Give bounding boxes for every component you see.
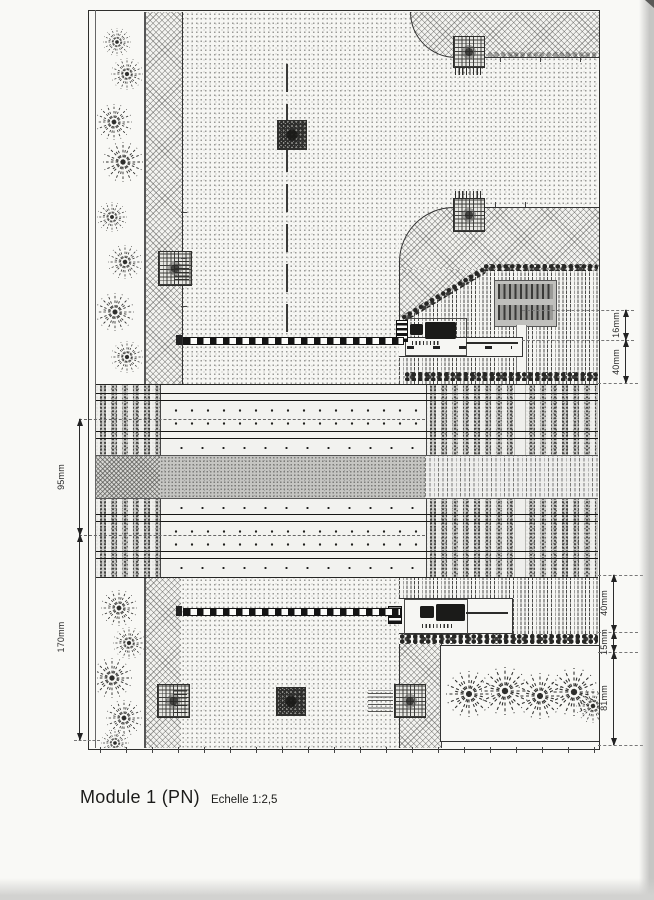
bottom-border-ticks <box>100 747 598 753</box>
dimension-label: 170mm <box>56 621 66 652</box>
module-inner-left-line <box>95 10 96 748</box>
dimension-label: 81mm <box>599 685 609 711</box>
dimension-label: 15mm <box>599 629 609 655</box>
drawing-title-block: Module 1 (PN) Echelle 1:2,5 <box>80 787 277 808</box>
dimension-label: 95mm <box>56 464 66 490</box>
extension-line <box>598 575 643 576</box>
dimension-40mm-upper <box>625 340 626 383</box>
dimension-40mm-lower <box>613 575 614 632</box>
extension-line <box>522 340 634 341</box>
dimension-95mm <box>79 419 80 535</box>
scale-note: Echelle 1:2,5 <box>211 794 278 806</box>
dimension-16mm <box>625 310 626 340</box>
dimension-15mm <box>613 632 614 652</box>
scan-corner-mark <box>645 0 654 8</box>
page-title: Module 1 (PN) <box>80 787 200 808</box>
scan-shadow-right <box>639 0 654 900</box>
extension-line <box>522 310 634 311</box>
scanned-plan-sheet: 95mm 170mm 16mm 40mm 40mm 15mm 81mm Modu… <box>0 0 654 900</box>
dimension-label: 40mm <box>599 590 609 616</box>
dimension-170mm <box>79 535 80 740</box>
dimension-label: 40mm <box>611 349 621 375</box>
dimension-81mm <box>613 652 614 745</box>
scan-shadow-bottom <box>0 878 654 900</box>
extension-line <box>598 745 643 746</box>
module-outline-frame <box>88 10 600 750</box>
extension-line <box>598 383 638 384</box>
dimension-label: 16mm <box>611 312 621 338</box>
